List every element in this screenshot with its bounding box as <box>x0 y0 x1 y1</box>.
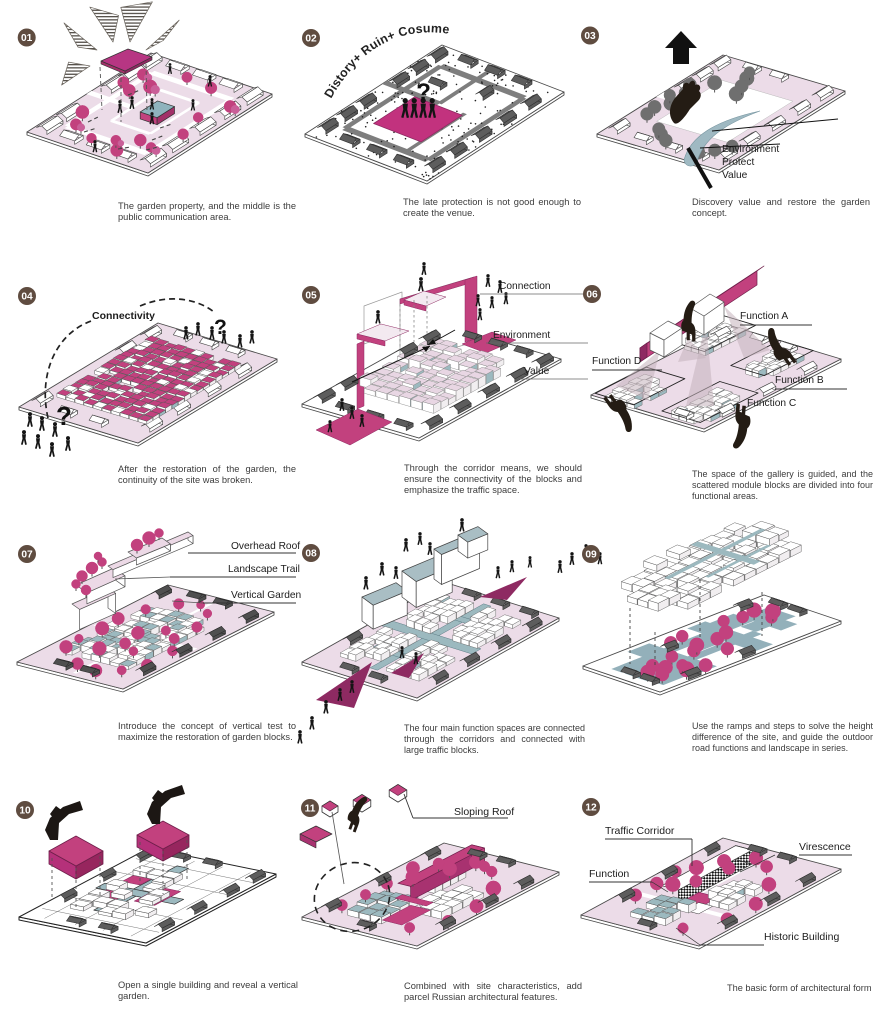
svg-text:06: 06 <box>586 290 598 301</box>
svg-text:11: 11 <box>305 804 316 815</box>
svg-text:?: ? <box>214 316 227 339</box>
svg-text:?: ? <box>56 401 72 431</box>
svg-text:12: 12 <box>585 803 597 814</box>
svg-text:01: 01 <box>21 33 33 44</box>
svg-text:08: 08 <box>305 549 317 560</box>
svg-text:?: ? <box>416 79 431 106</box>
svg-text:10: 10 <box>19 806 31 817</box>
svg-text:02: 02 <box>305 34 317 45</box>
svg-text:03: 03 <box>584 31 596 42</box>
svg-text:07: 07 <box>21 550 33 561</box>
svg-text:09: 09 <box>585 550 597 561</box>
svg-text:05: 05 <box>305 291 317 302</box>
svg-text:04: 04 <box>21 292 33 303</box>
